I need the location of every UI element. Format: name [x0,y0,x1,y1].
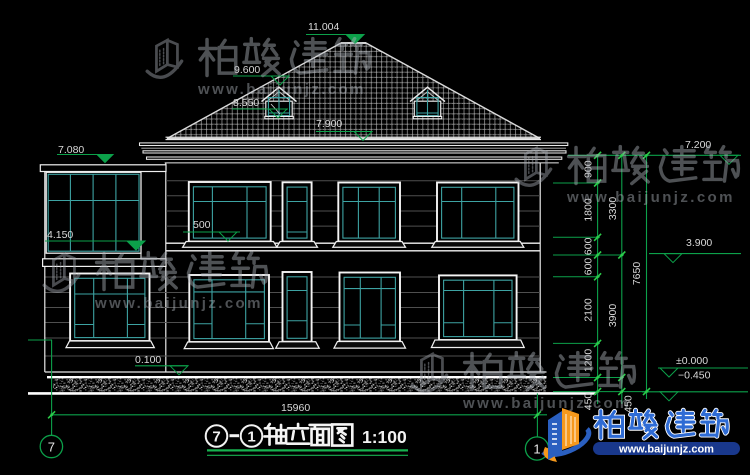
svg-text:3900: 3900 [607,304,619,328]
svg-text:8.550: 8.550 [233,97,259,109]
svg-text:−0.450: −0.450 [678,370,711,382]
svg-text:7: 7 [212,429,220,446]
svg-text:www.baijunjz.com: www.baijunjz.com [94,295,263,312]
svg-text:1: 1 [247,429,255,446]
svg-text:7.900: 7.900 [316,118,342,130]
svg-text:9.600: 9.600 [234,64,260,76]
svg-text:600: 600 [583,258,595,276]
svg-text:±0.000: ±0.000 [676,355,708,367]
svg-text:15960: 15960 [281,402,310,414]
svg-text:11.004: 11.004 [308,21,339,33]
svg-text:500: 500 [193,219,211,231]
svg-text:www.baijunjz.com: www.baijunjz.com [566,189,735,206]
svg-text:3.900: 3.900 [686,237,712,249]
svg-text:600: 600 [583,237,595,255]
svg-text:4.150: 4.150 [47,229,73,241]
svg-text:7650: 7650 [631,262,643,286]
svg-text:www.baijunjz.com: www.baijunjz.com [197,81,366,98]
svg-text:1:100: 1:100 [362,427,407,447]
svg-text:2100: 2100 [583,298,595,322]
svg-text:www.baijunjz.com: www.baijunjz.com [618,444,714,456]
svg-text:0.100: 0.100 [135,354,161,366]
svg-text:www.baijunjz.com: www.baijunjz.com [462,395,631,412]
svg-text:7: 7 [48,440,55,455]
svg-text:1: 1 [533,442,540,457]
